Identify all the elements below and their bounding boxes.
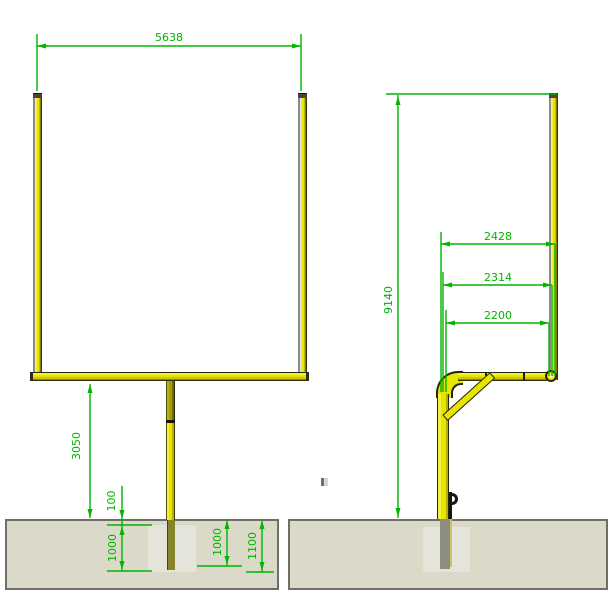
- dim-footing-depth: 1000: [105, 528, 121, 568]
- elbow-inner-fillet: [451, 383, 463, 398]
- dim-post-embedment: 1000: [210, 522, 226, 562]
- front-crossbar: [30, 372, 309, 381]
- winch-bracket-loop: [450, 493, 458, 505]
- front-right-upright: [298, 93, 307, 374]
- right-upright-cap: [298, 93, 307, 98]
- side-upright-cap: [549, 93, 558, 98]
- buried-post-side-highlight: [450, 519, 452, 567]
- dim-overhang-bottom: 2200: [476, 308, 520, 324]
- dim-goal-width: 5638: [149, 30, 189, 46]
- front-gooseneck-upper: [166, 380, 175, 423]
- arm-joint-seam: [523, 372, 525, 381]
- side-upright: [549, 93, 558, 380]
- dim-excavation-depth: 1100: [245, 526, 261, 566]
- dim-overall-height: 9140: [381, 280, 397, 320]
- ground-slab-front: [5, 519, 279, 590]
- buried-post-front: [167, 519, 175, 570]
- front-left-upright: [33, 93, 42, 374]
- side-offset-arm: [458, 372, 547, 381]
- dim-crossbar-height: 3050: [69, 426, 85, 466]
- goalpost-dimension-drawing: 5638 3050 100 1000 1000 1100 9140 2428 2…: [0, 0, 613, 601]
- dim-overhang-top: 2428: [476, 229, 520, 245]
- section-marker-light: [324, 478, 328, 486]
- front-main-post: [166, 423, 175, 520]
- dim-overhang-mid: 2314: [476, 270, 520, 286]
- buried-post-side: [440, 519, 450, 569]
- dim-footing-cover: 100: [104, 481, 120, 521]
- left-upright-cap: [33, 93, 42, 98]
- flange-bolt: [549, 374, 553, 378]
